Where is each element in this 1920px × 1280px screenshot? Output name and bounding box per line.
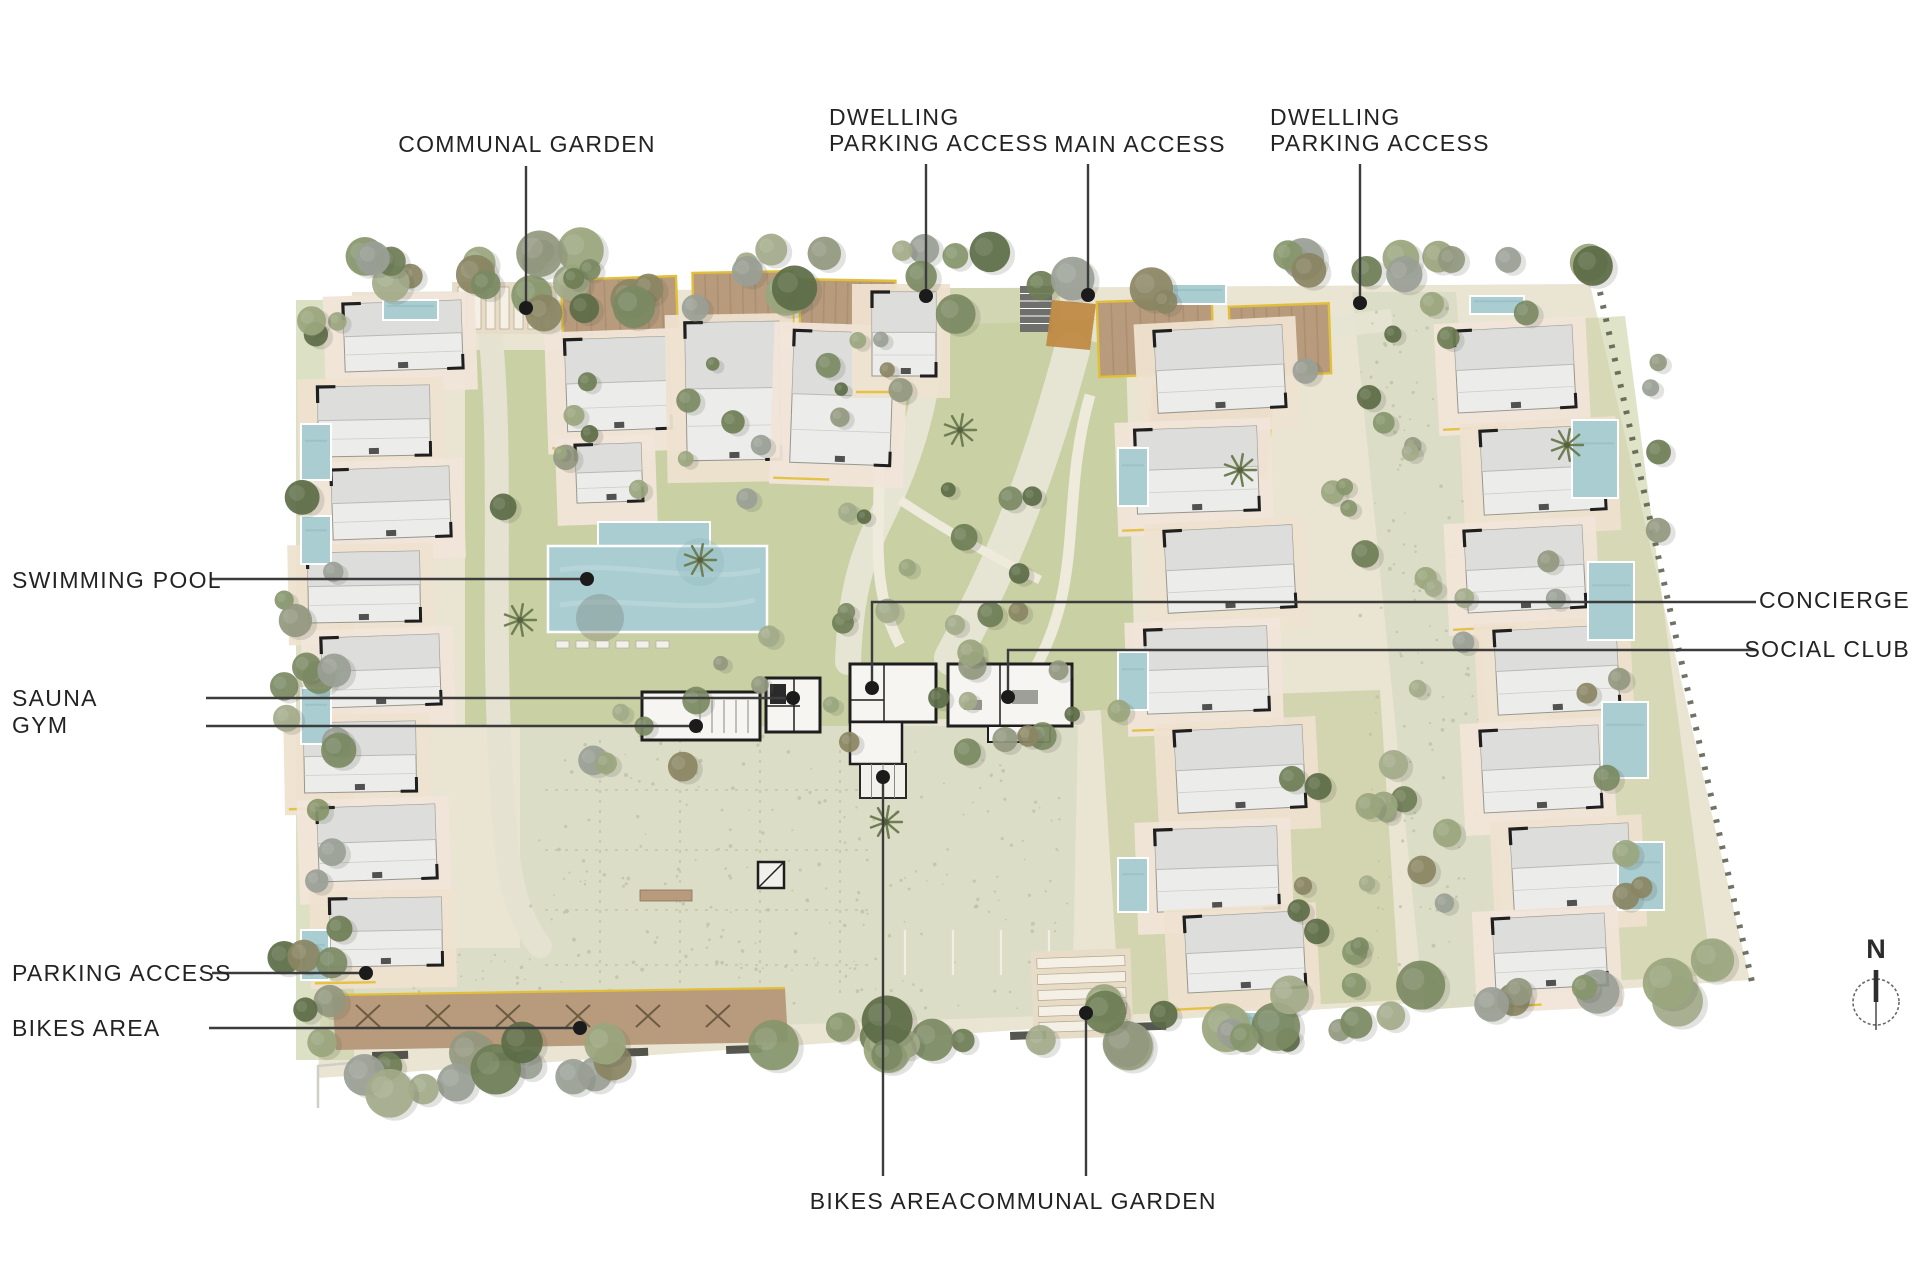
leader-dot-dwelling-parking-access-right bbox=[1353, 296, 1367, 310]
north-dial-icon bbox=[1846, 964, 1906, 1032]
leader-dot-swimming-pool bbox=[580, 572, 594, 586]
leader-dot-social-club bbox=[1001, 690, 1015, 704]
site-plan-page: COMMUNAL GARDENDWELLINGPARKING ACCESSMAI… bbox=[0, 0, 1920, 1280]
leader-dot-bikes-area-left bbox=[573, 1021, 587, 1035]
leader-dot-bikes-area-bottom bbox=[876, 770, 890, 784]
leader-dot-main-access bbox=[1081, 288, 1095, 302]
north-arrow: N bbox=[1845, 936, 1907, 1032]
leader-line-concierge bbox=[872, 602, 1756, 688]
leader-dot-communal-garden-bottom bbox=[1079, 1006, 1093, 1020]
leader-dot-gym bbox=[689, 719, 703, 733]
north-label: N bbox=[1845, 936, 1907, 962]
leader-dot-parking-access bbox=[359, 966, 373, 980]
leader-dot-dwelling-parking-access-left bbox=[919, 289, 933, 303]
annotation-leaders bbox=[0, 0, 1920, 1280]
leader-line-social-club bbox=[1008, 650, 1756, 697]
leader-dot-sauna bbox=[786, 691, 800, 705]
leader-dot-communal-garden-top bbox=[519, 301, 533, 315]
leader-dot-concierge bbox=[865, 681, 879, 695]
